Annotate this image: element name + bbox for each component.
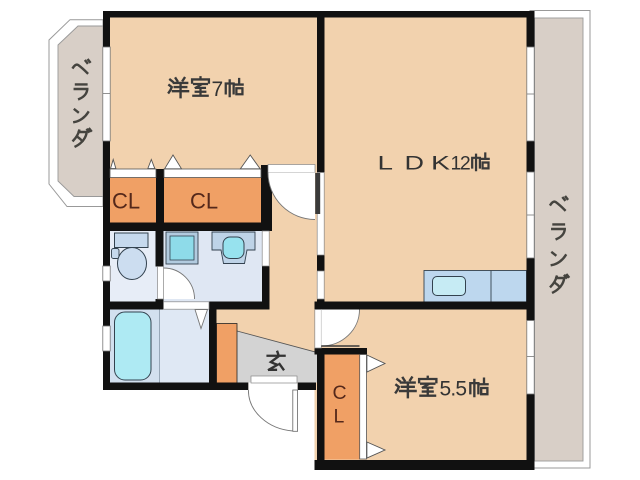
svg-text:5.5: 5.5 [440, 378, 467, 401]
svg-text:D: D [405, 154, 425, 175]
svg-text:C: C [333, 382, 347, 404]
svg-text:12: 12 [451, 153, 470, 175]
svg-text:K: K [431, 154, 450, 175]
svg-text:CL: CL [112, 189, 140, 214]
svg-text:7: 7 [212, 78, 224, 101]
svg-text:CL: CL [190, 189, 218, 214]
svg-text:L: L [334, 406, 345, 428]
svg-text:L: L [378, 154, 394, 175]
